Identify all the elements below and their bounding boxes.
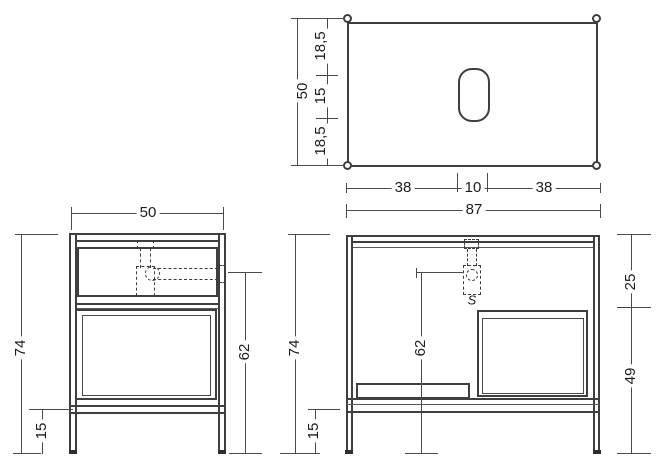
dimension-label: 15 xyxy=(34,420,50,443)
tick xyxy=(617,307,651,308)
dimension-label: 62 xyxy=(237,341,253,364)
tick xyxy=(600,183,601,193)
tick xyxy=(405,453,438,454)
tick xyxy=(346,183,347,193)
tick xyxy=(346,204,347,218)
dimension-label: 74 xyxy=(287,337,303,360)
tick xyxy=(316,118,338,119)
dimension-label: 18,5 xyxy=(313,123,329,158)
dimension-label: 49 xyxy=(623,365,639,388)
tick xyxy=(617,453,651,454)
leg-foot xyxy=(69,450,77,454)
dimension-line xyxy=(417,272,464,273)
tick xyxy=(71,207,72,230)
corner-screw-icon xyxy=(592,14,601,23)
frame-leg xyxy=(593,235,595,452)
wall-flange xyxy=(216,265,226,283)
tick xyxy=(308,409,340,410)
bottom-rail xyxy=(69,412,226,414)
shelf-slab xyxy=(356,383,470,399)
dimension-label: 25 xyxy=(623,271,639,294)
dimension-label: 74 xyxy=(13,337,29,360)
siphon-label: S xyxy=(468,294,477,307)
tick xyxy=(280,453,320,454)
top-rail xyxy=(69,233,226,235)
waste-pipe xyxy=(153,268,218,280)
tick xyxy=(600,204,601,218)
tick xyxy=(416,268,417,278)
extension-line xyxy=(291,165,345,166)
extension-line xyxy=(487,173,488,192)
frame-leg xyxy=(351,235,353,452)
frame-leg xyxy=(598,235,600,452)
tick xyxy=(29,409,73,410)
dimension-label: 10 xyxy=(462,180,485,196)
leg-foot xyxy=(345,450,353,454)
drain-pipe xyxy=(467,249,477,266)
dimension-label: 15 xyxy=(313,85,329,108)
dimension-label: 38 xyxy=(392,180,415,196)
corner-screw-icon xyxy=(592,161,601,170)
leg-foot xyxy=(218,450,226,454)
drain-pipe xyxy=(140,248,151,268)
tick xyxy=(229,453,262,454)
extension-line xyxy=(291,18,345,19)
top-rail xyxy=(346,235,600,237)
frame-leg xyxy=(69,233,71,452)
dimension-label: 62 xyxy=(413,337,429,360)
dimension-line xyxy=(421,273,422,454)
drain-flange xyxy=(464,239,479,249)
dimension-label: 18,5 xyxy=(313,28,329,63)
bottom-rail xyxy=(346,411,600,413)
siphon-outlet xyxy=(466,269,478,281)
tick xyxy=(288,234,330,235)
technical-drawing: 50 18,5 15 18,5 38 10 38 87 50 xyxy=(0,0,656,463)
mid-rail xyxy=(77,303,218,305)
dimension-label: 50 xyxy=(295,80,311,103)
tick xyxy=(223,207,224,230)
drawer-box-inner xyxy=(482,318,584,394)
dimension-label: 50 xyxy=(137,205,160,221)
bottom-rail xyxy=(69,405,226,407)
frame-leg xyxy=(346,235,348,452)
dimension-label: 87 xyxy=(463,202,486,218)
tick xyxy=(228,272,262,273)
dimension-label: 15 xyxy=(306,420,322,443)
tick xyxy=(617,234,651,235)
drain-cutout xyxy=(458,68,490,122)
extension-line xyxy=(457,173,458,192)
tick xyxy=(13,453,41,454)
leg-foot xyxy=(593,450,601,454)
bottom-rail xyxy=(346,398,600,400)
bottom-rail xyxy=(346,404,600,405)
tick xyxy=(316,75,338,76)
lower-panel-inner xyxy=(82,315,211,396)
dimension-label: 38 xyxy=(533,180,556,196)
tick xyxy=(15,234,58,235)
